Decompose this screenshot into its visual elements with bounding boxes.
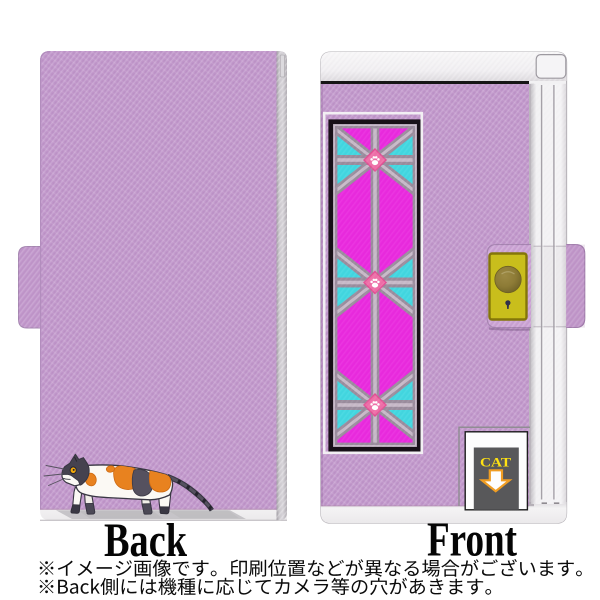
- svg-text:CAT: CAT: [480, 455, 511, 470]
- svg-text:Back: Back: [104, 514, 187, 567]
- svg-text:Front: Front: [427, 512, 518, 567]
